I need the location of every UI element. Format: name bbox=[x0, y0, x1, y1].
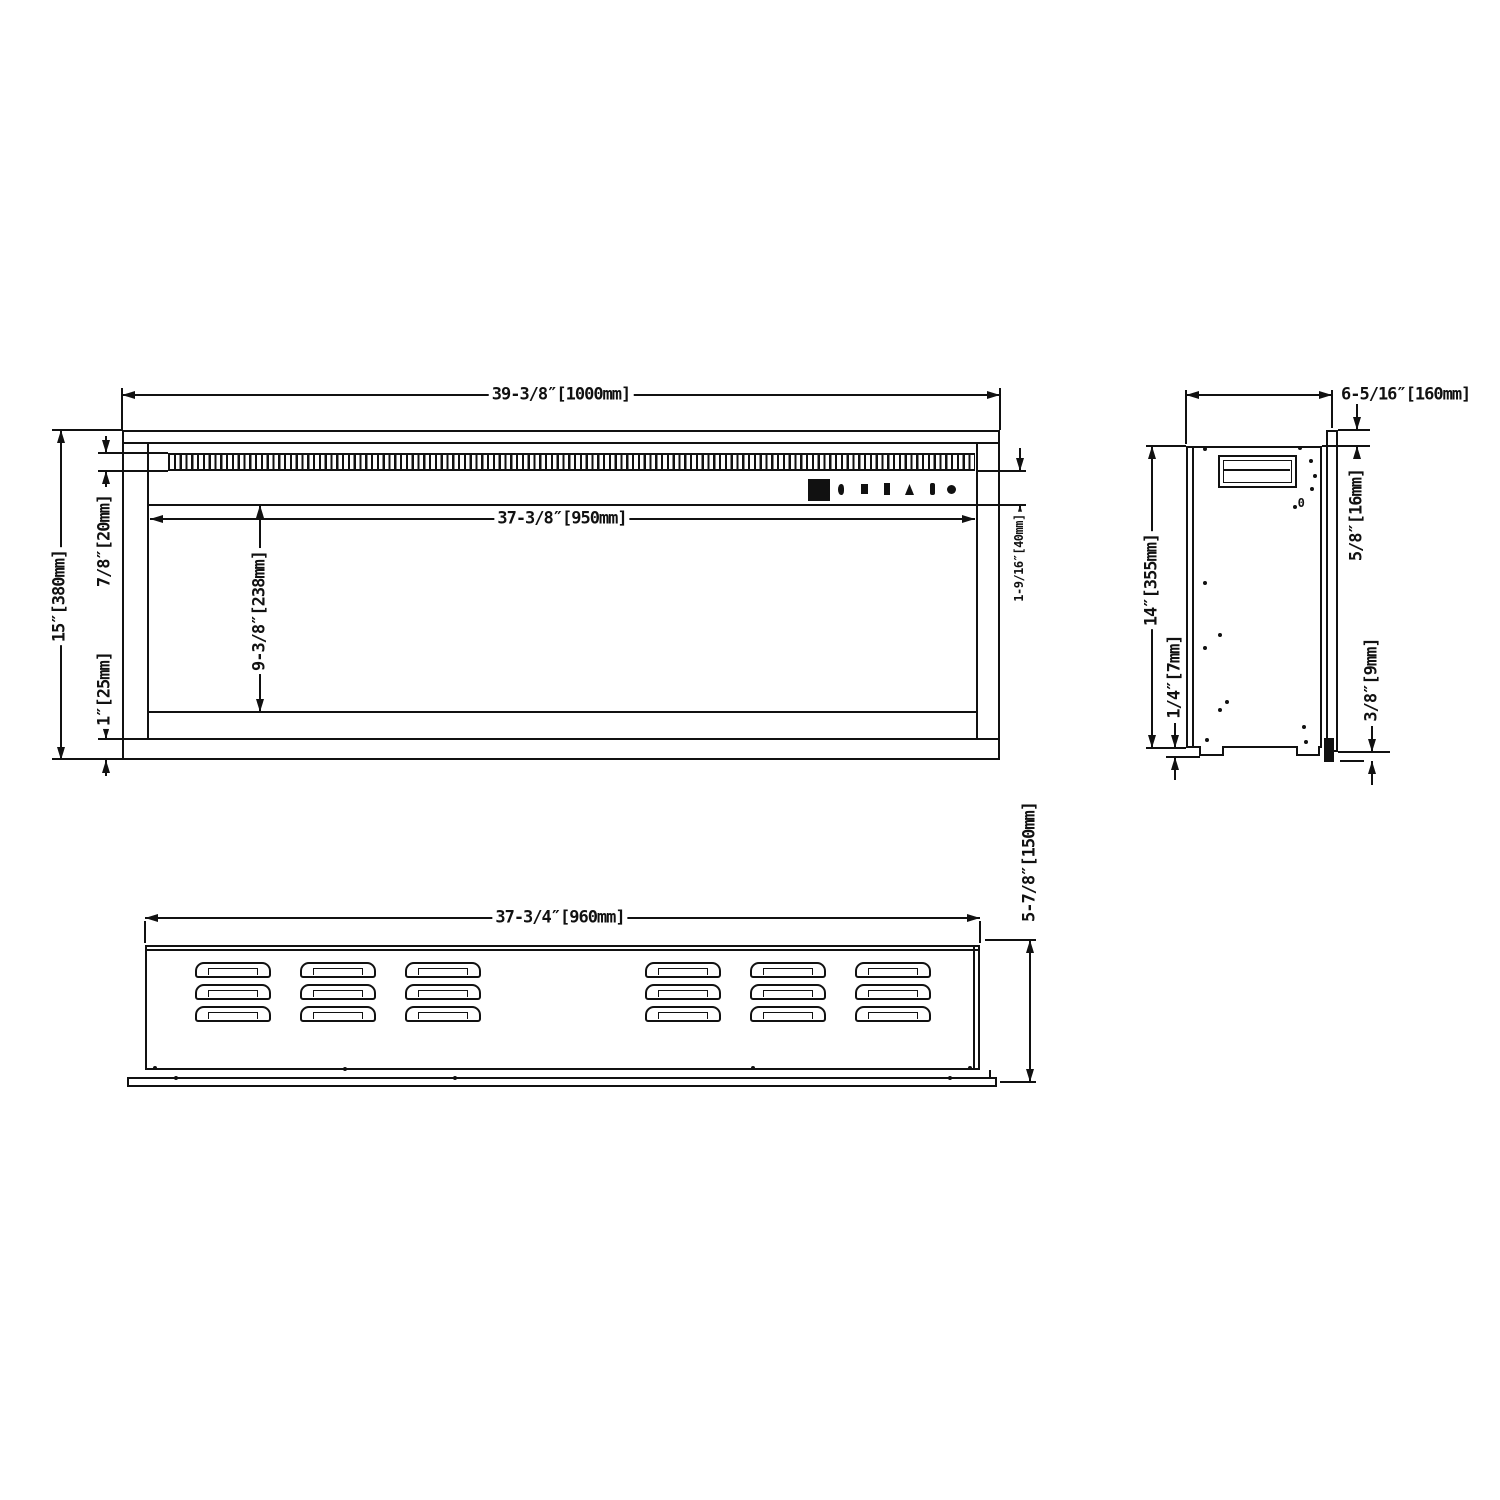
front-inner-right-line bbox=[976, 443, 978, 739]
screw-dot bbox=[1218, 633, 1222, 637]
vent-louver bbox=[855, 1006, 931, 1022]
side-inner-left-line bbox=[1192, 448, 1194, 746]
arrowhead-icon bbox=[102, 440, 110, 453]
display-screen-icon bbox=[808, 479, 830, 501]
arrowhead-icon bbox=[1319, 391, 1332, 399]
arrowhead-icon bbox=[1148, 446, 1156, 459]
screw-dot bbox=[1309, 459, 1313, 463]
screw-dot bbox=[1302, 725, 1306, 729]
control-button-3-icon bbox=[884, 483, 890, 495]
extension-line bbox=[1322, 445, 1370, 447]
arrowhead-icon bbox=[102, 471, 110, 484]
arrowhead-icon bbox=[1171, 735, 1179, 748]
dimension-line bbox=[1186, 394, 1332, 396]
screw-dot bbox=[1313, 474, 1317, 478]
vent-louver bbox=[405, 962, 481, 978]
side-vent-window-inner bbox=[1223, 460, 1292, 483]
vent-louver bbox=[645, 1006, 721, 1022]
arrowhead-icon bbox=[102, 760, 110, 773]
arrowhead-icon bbox=[1171, 757, 1179, 770]
arrowhead-icon bbox=[57, 747, 65, 760]
screw-dot bbox=[1298, 446, 1302, 450]
dim-label-bottom-width: 37-3/4″[960mm] bbox=[492, 909, 627, 928]
arrowhead-icon bbox=[1186, 391, 1199, 399]
screw-dot bbox=[343, 1067, 347, 1071]
vent-louver bbox=[750, 1006, 826, 1022]
bottom-inner-right-line bbox=[973, 947, 975, 1068]
arrowhead-icon bbox=[1016, 458, 1024, 471]
extension-line bbox=[979, 921, 981, 943]
arrowhead-icon bbox=[967, 914, 980, 922]
front-air-grille bbox=[168, 453, 975, 471]
arrowhead-icon bbox=[1368, 761, 1376, 774]
arrowhead-icon bbox=[1353, 446, 1361, 459]
side-front-flange bbox=[1326, 430, 1338, 752]
side-foot bbox=[1199, 746, 1224, 756]
dim-label-opening-height: 9-3/8″[238mm] bbox=[251, 548, 270, 674]
vent-louver bbox=[855, 962, 931, 978]
dim-label-front-inner-width: 37-3/8″[950mm] bbox=[494, 510, 629, 529]
vent-louver bbox=[195, 1006, 271, 1022]
dim-label-bottom-band: 1″[25mm] bbox=[96, 649, 115, 729]
side-body-outline bbox=[1186, 446, 1322, 748]
bottom-flange-step-line bbox=[989, 1070, 991, 1078]
side-flange-bottom-block bbox=[1324, 738, 1334, 762]
front-inner-left-line bbox=[147, 443, 149, 739]
arrowhead-icon bbox=[1368, 739, 1376, 752]
screw-dot bbox=[1203, 646, 1207, 650]
arrowhead-icon bbox=[1026, 940, 1034, 953]
vent-louver bbox=[195, 984, 271, 1000]
bottom-inner-top-line bbox=[147, 949, 978, 951]
dimension-line bbox=[1029, 940, 1031, 1082]
extension-line bbox=[144, 921, 146, 943]
screw-dot bbox=[1310, 487, 1314, 491]
control-button-5-icon bbox=[930, 483, 935, 495]
front-inner-top-line bbox=[124, 442, 998, 444]
arrowhead-icon bbox=[1026, 1069, 1034, 1082]
zero-marking: 0 bbox=[1298, 497, 1305, 509]
dim-label-side-height: 14″[355mm] bbox=[1143, 531, 1162, 629]
screw-dot bbox=[153, 1066, 157, 1070]
control-button-6-icon bbox=[947, 485, 956, 494]
control-button-1-icon bbox=[838, 484, 844, 495]
dim-label-control-band: 1-9/16″[40mm] bbox=[1012, 511, 1026, 604]
front-control-band-line bbox=[148, 504, 977, 506]
arrowhead-icon bbox=[962, 515, 975, 523]
vent-louver bbox=[195, 962, 271, 978]
technical-drawing-sheet: 39-3/8″[1000mm] 37-3/8″[950mm] 15″[380mm… bbox=[0, 0, 1500, 1500]
vent-louver bbox=[645, 984, 721, 1000]
extension-line bbox=[1340, 760, 1364, 762]
vent-louver bbox=[300, 962, 376, 978]
dim-label-front-width: 39-3/8″[1000mm] bbox=[489, 386, 634, 405]
arrowhead-icon bbox=[122, 391, 135, 399]
vent-louver bbox=[750, 962, 826, 978]
arrowhead-icon bbox=[145, 914, 158, 922]
vent-louver bbox=[855, 984, 931, 1000]
screw-dot bbox=[1218, 708, 1222, 712]
front-inner-bottom-line bbox=[124, 738, 998, 740]
bottom-flange bbox=[127, 1077, 997, 1087]
arrowhead-icon bbox=[256, 699, 264, 712]
screw-dot bbox=[1203, 447, 1207, 451]
vent-louver bbox=[750, 984, 826, 1000]
dim-label-front-height: 15″[380mm] bbox=[51, 547, 70, 645]
side-foot bbox=[1296, 746, 1320, 756]
screw-dot bbox=[1205, 738, 1209, 742]
screw-dot bbox=[1225, 700, 1229, 704]
vent-louver bbox=[645, 962, 721, 978]
dim-label-grille-height: 7/8″[20mm] bbox=[96, 492, 115, 590]
screw-dot bbox=[751, 1066, 755, 1070]
arrowhead-icon bbox=[1353, 417, 1361, 430]
extension-line bbox=[1338, 751, 1390, 753]
screw-dot bbox=[968, 1066, 972, 1070]
dim-label-side-depth: 6-5/16″[160mm] bbox=[1338, 386, 1473, 405]
screw-dot bbox=[453, 1076, 457, 1080]
bottom-body-outline bbox=[145, 945, 980, 1070]
dim-label-bottom-depth: 5-7/8″[150mm] bbox=[1021, 799, 1040, 925]
front-opening-bottom-line bbox=[148, 711, 977, 713]
control-button-2-icon bbox=[861, 484, 868, 494]
vent-louver bbox=[405, 984, 481, 1000]
arrowhead-icon bbox=[1148, 735, 1156, 748]
arrowhead-icon bbox=[150, 515, 163, 523]
side-vent-divider-line bbox=[1224, 469, 1290, 471]
vent-louver bbox=[405, 1006, 481, 1022]
arrowhead-icon bbox=[256, 505, 264, 518]
screw-dot bbox=[174, 1076, 178, 1080]
vent-louver bbox=[300, 984, 376, 1000]
screw-dot bbox=[1203, 581, 1207, 585]
screw-dot bbox=[1304, 740, 1308, 744]
dim-label-flange-bottom-offset: 3/8″[9mm] bbox=[1363, 635, 1382, 724]
vent-louver bbox=[300, 1006, 376, 1022]
screw-dot bbox=[948, 1076, 952, 1080]
arrowhead-icon bbox=[57, 430, 65, 443]
screw-dot bbox=[1293, 505, 1297, 509]
dim-label-foot-offset: 1/4″[7mm] bbox=[1166, 632, 1185, 721]
arrowhead-icon bbox=[987, 391, 1000, 399]
dim-label-flange-top-offset: 5/8″[16mm] bbox=[1348, 466, 1367, 564]
